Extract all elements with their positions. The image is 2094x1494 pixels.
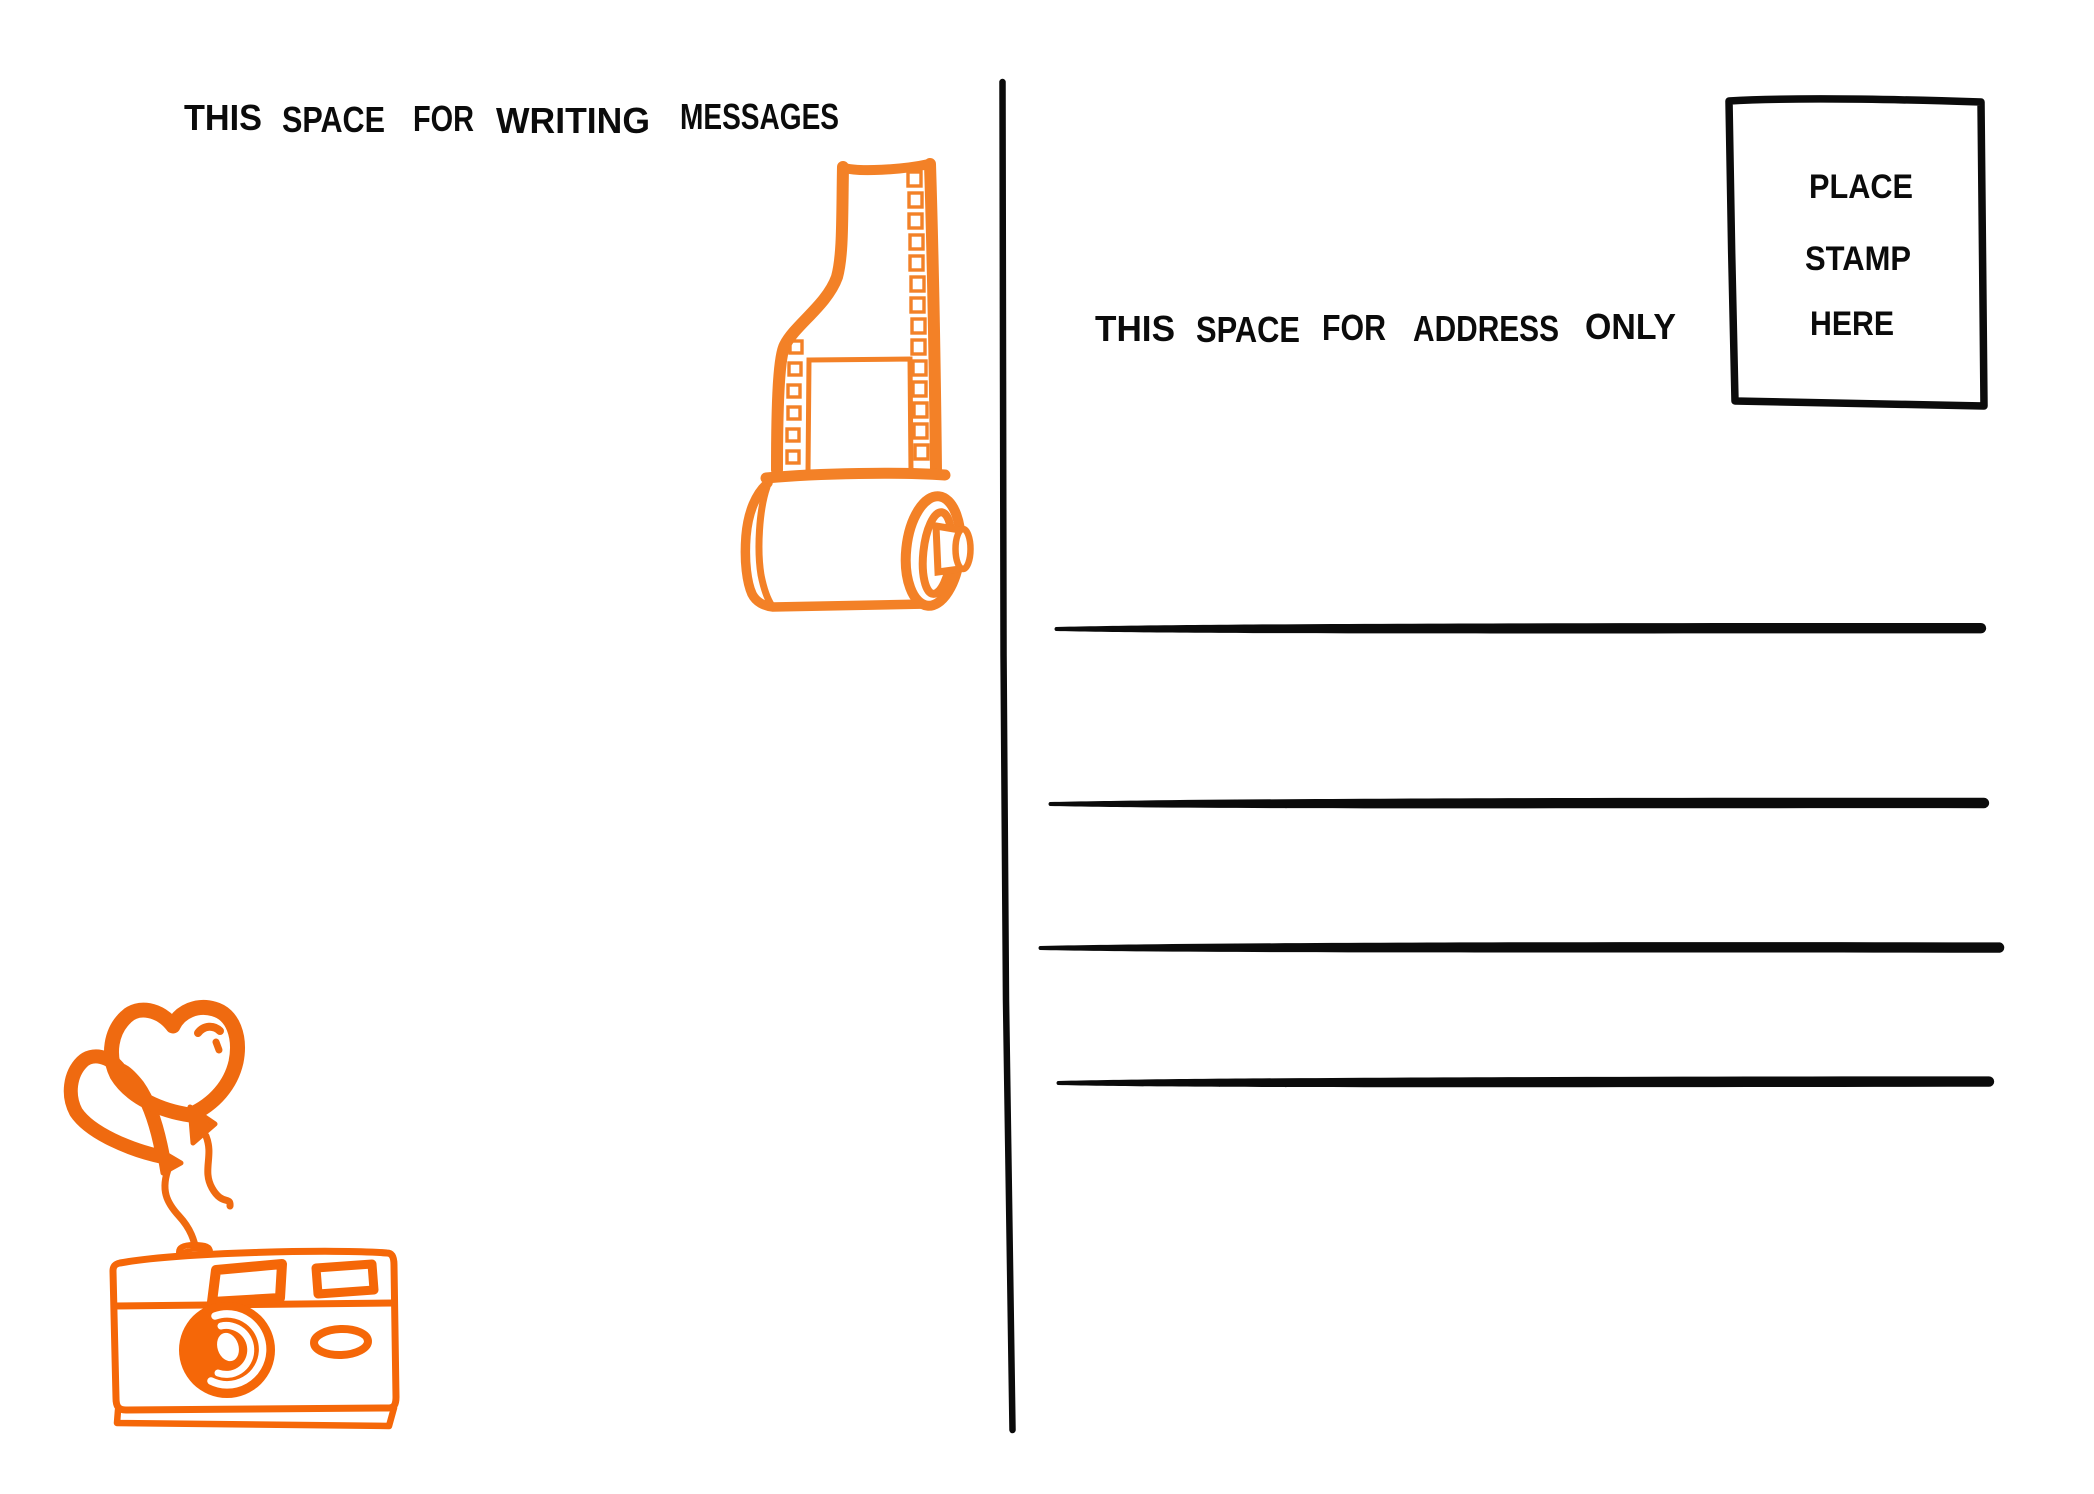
svg-text:THISSPACEFORWRITINGMESSAGES: THISSPACEFORWRITINGMESSAGES (184, 96, 839, 141)
svg-text:STAMP: STAMP (1805, 240, 1911, 278)
svg-text:HERE: HERE (1810, 305, 1894, 343)
svg-text:THISSPACEFORADDRESSONLY: THISSPACEFORADDRESSONLY (1095, 306, 1676, 350)
svg-text:PLACE: PLACE (1809, 168, 1913, 206)
